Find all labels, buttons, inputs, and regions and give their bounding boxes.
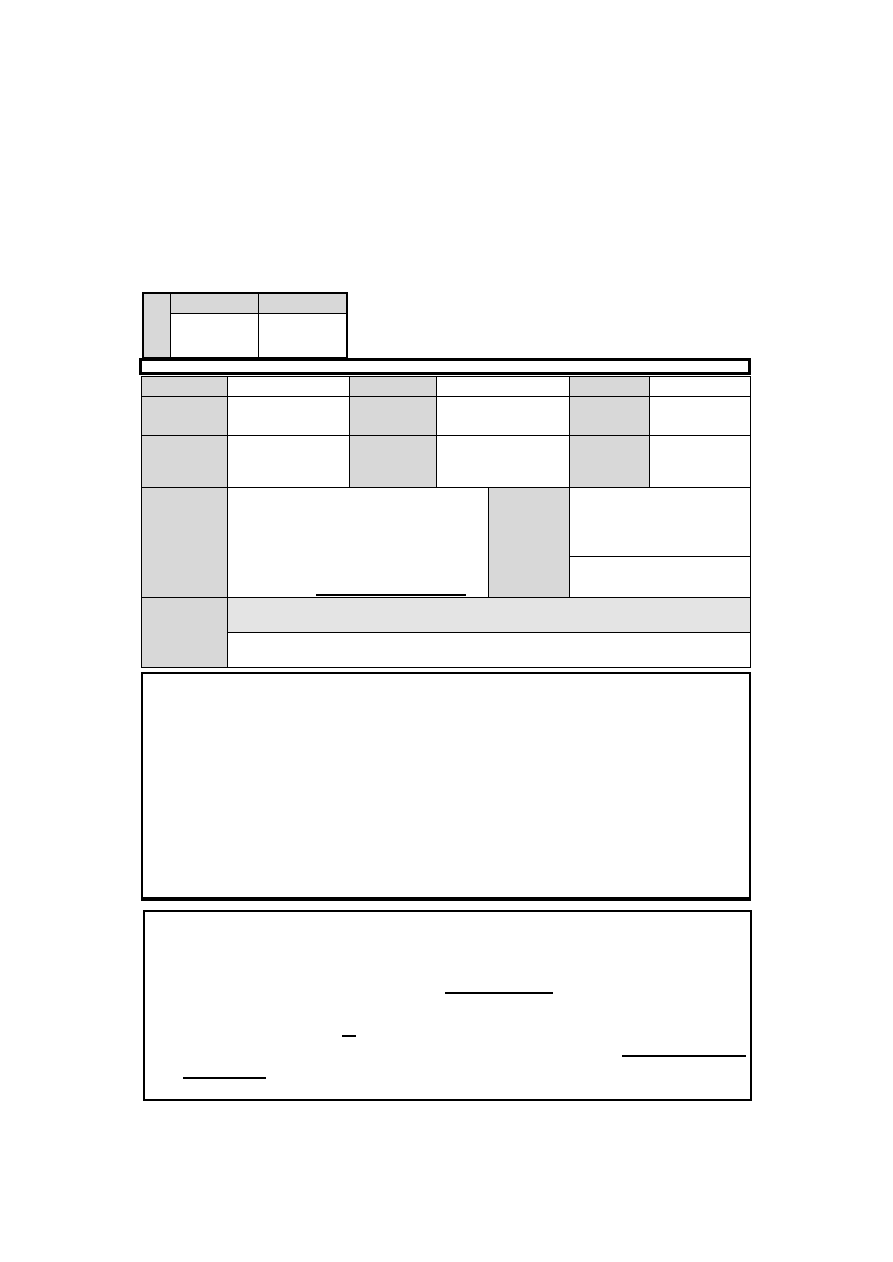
label-cell [350, 377, 436, 396]
label-cell [142, 488, 227, 597]
shaded-band-cell [228, 598, 750, 632]
detail-table-row-5 [141, 597, 751, 668]
value-cell [570, 488, 750, 556]
value-cell [228, 633, 750, 667]
key-table-corner-cell [144, 294, 170, 357]
document-page [0, 0, 893, 1262]
key-table-value-cell [171, 314, 258, 357]
label-cell [142, 598, 227, 667]
value-cell [228, 397, 349, 435]
wide-entry-cell [228, 488, 488, 597]
value-cell [437, 377, 569, 396]
value-cell [228, 436, 349, 487]
signature-box [143, 910, 752, 1101]
value-cell [650, 397, 750, 435]
key-table-header-cell [259, 294, 346, 313]
title-bar [139, 358, 751, 375]
value-cell [437, 436, 569, 487]
write-in-line [183, 1077, 266, 1079]
remarks-box [141, 672, 751, 901]
detail-table-row-4 [141, 487, 751, 598]
label-cell [570, 397, 649, 435]
detail-table-rows-1-3 [141, 376, 751, 488]
label-cell [570, 436, 649, 487]
key-table-header-cell [171, 294, 258, 313]
label-cell [489, 488, 569, 597]
label-cell [142, 377, 227, 396]
key-table-value-cell [259, 314, 346, 357]
label-cell [350, 436, 436, 487]
value-cell [437, 397, 569, 435]
header-key-table [142, 292, 348, 359]
label-cell [350, 397, 436, 435]
value-cell [570, 557, 750, 597]
write-in-line [445, 992, 553, 994]
value-cell [228, 377, 349, 396]
label-cell [142, 436, 227, 487]
write-in-line [316, 594, 466, 596]
write-in-line [342, 1035, 356, 1037]
value-cell [650, 436, 750, 487]
write-in-line [622, 1055, 746, 1057]
label-cell [142, 397, 227, 435]
label-cell [570, 377, 649, 396]
value-cell [650, 377, 750, 396]
